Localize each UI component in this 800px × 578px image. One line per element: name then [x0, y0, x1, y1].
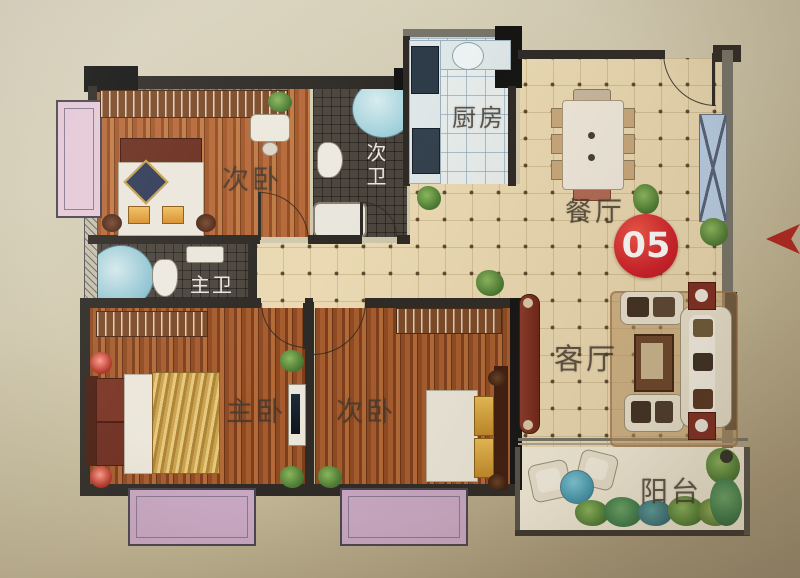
sofa-cushion: [653, 297, 675, 317]
side-table: [688, 282, 716, 310]
side-table-top: [695, 419, 708, 432]
bay-window-glass: [136, 496, 248, 538]
bay-window: [56, 100, 102, 218]
stool: [262, 142, 278, 156]
sink-icon: [452, 42, 484, 70]
pillow: [474, 438, 494, 478]
nightstand: [488, 474, 506, 490]
balcony-table: [560, 470, 594, 504]
toilet-icon: [152, 259, 178, 297]
bedroom-top-label: 次卧: [222, 158, 282, 197]
bay-window: [340, 488, 468, 546]
tv-icon: [291, 394, 300, 434]
wall-segment: [518, 50, 665, 59]
plant: [318, 466, 342, 488]
floorplan: 次卫 主卫: [0, 0, 800, 578]
wall-segment: [744, 447, 750, 535]
stove-icon: [411, 46, 439, 94]
tv-cabinet: [519, 294, 540, 434]
sofa-loveseat: [624, 394, 684, 432]
plant: [280, 350, 304, 372]
table-decor: [588, 132, 595, 139]
coffee-table-top: [641, 343, 663, 379]
toilet-icon: [317, 142, 343, 178]
shaft-window: [699, 114, 727, 222]
pot: [720, 450, 733, 463]
sofa-cushion: [627, 297, 649, 317]
sofa-loveseat: [620, 291, 684, 325]
sofa-cushion: [693, 389, 713, 409]
balcony-label: 阳台: [640, 470, 702, 510]
plant: [280, 466, 304, 488]
door-leaf: [311, 302, 314, 356]
entry-door-leaf: [712, 53, 715, 106]
bay-window-glass: [348, 496, 460, 538]
fridge-icon: [412, 128, 440, 174]
wardrobe: [396, 308, 502, 334]
nightstand: [102, 214, 122, 232]
bath-master-label: 主卫: [190, 269, 234, 298]
pillow: [474, 396, 494, 436]
pillow: [162, 206, 184, 224]
bay-window-glass: [64, 108, 94, 210]
table-decor: [588, 154, 595, 161]
nightstand: [196, 214, 216, 232]
wall-segment: [397, 235, 410, 244]
door-leaf: [360, 202, 363, 235]
living-label: 客厅: [554, 336, 618, 378]
plant: [633, 184, 659, 214]
plant: [417, 186, 441, 210]
pillow: [96, 422, 126, 466]
dresser: [250, 114, 290, 142]
plant: [700, 218, 728, 246]
sofa-cushion: [655, 401, 673, 423]
door-leaf: [258, 192, 261, 240]
pillow: [128, 206, 150, 224]
bath-master-room: 主卫: [92, 243, 252, 303]
tv-cabinet-knob: [523, 420, 533, 430]
sink-icon: [186, 246, 224, 263]
bath-secondary-label: 次卫: [361, 142, 390, 190]
bedroom-master-label: 主卧: [226, 390, 286, 429]
bed: [426, 390, 478, 482]
wardrobe: [96, 311, 208, 337]
wall-segment: [80, 298, 261, 308]
bed-blanket: [152, 372, 220, 474]
plant: [710, 478, 742, 526]
wall-segment: [88, 235, 260, 244]
wall-segment: [365, 298, 520, 308]
bedside-lamp: [90, 352, 112, 374]
wall-segment: [515, 447, 520, 535]
wall-segment: [508, 86, 516, 186]
sofa-cushion: [631, 401, 651, 423]
wall-segment: [308, 235, 362, 244]
pillow: [96, 378, 126, 422]
dining-label: 餐厅: [565, 190, 625, 229]
sofa-long: [680, 306, 732, 428]
sofa-cushion: [693, 353, 713, 371]
wall-segment: [248, 243, 257, 303]
plant: [476, 270, 504, 296]
coffee-table: [634, 334, 674, 392]
location-arrow-icon: [766, 224, 800, 254]
wall-segment: [515, 530, 750, 536]
shower-icon: [92, 245, 154, 303]
kitchen-label: 厨房: [452, 98, 506, 133]
bedroom-second-label: 次卧: [336, 390, 396, 429]
door-leaf: [303, 303, 306, 349]
plant: [268, 92, 292, 112]
sofa-cushion: [693, 319, 713, 337]
bedside-lamp: [90, 466, 112, 488]
dining-table: [562, 100, 624, 190]
plant: [604, 497, 642, 527]
unit-number-badge: 05: [614, 214, 678, 278]
bay-window: [128, 488, 256, 546]
wall-hatched: [84, 210, 98, 304]
bathtub-icon: [313, 202, 367, 237]
basin-icon: [352, 88, 407, 138]
nightstand: [488, 370, 506, 386]
tv-cabinet-knob: [523, 298, 533, 308]
chair-seat: [535, 467, 563, 494]
side-table: [688, 412, 716, 440]
side-table-top: [695, 289, 708, 302]
